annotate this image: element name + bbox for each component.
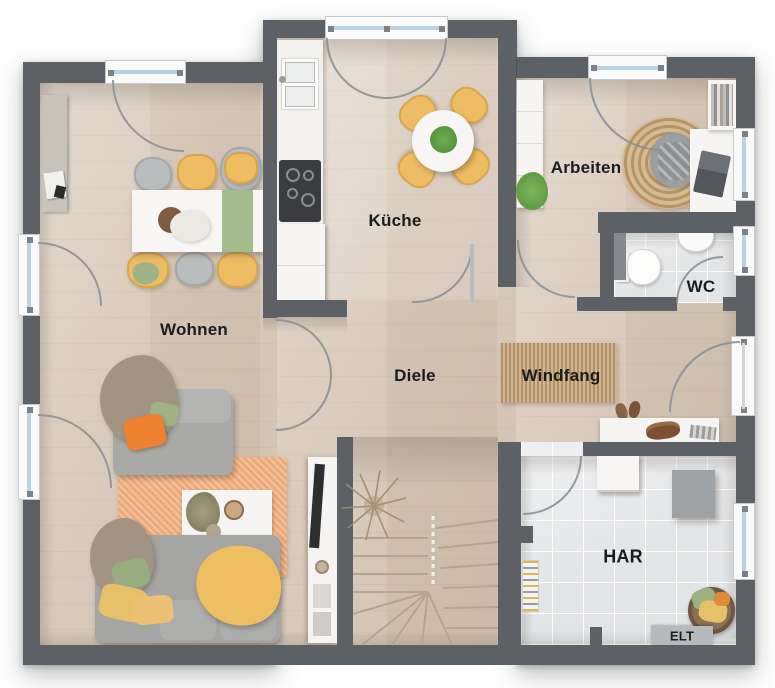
- stair-tread: [442, 586, 498, 588]
- door-arc: [387, 38, 446, 98]
- stair-tread: [440, 564, 498, 568]
- door-arc: [327, 38, 387, 98]
- stair-tread: [444, 607, 498, 608]
- room-label-windfang: Windfang: [522, 366, 601, 386]
- room-label-kueche: Küche: [369, 211, 422, 231]
- door-arc: [38, 415, 111, 488]
- door-arc: [38, 243, 101, 306]
- stair-tread: [438, 542, 498, 548]
- room-label-har: HAR: [603, 547, 643, 568]
- door-arc: [412, 244, 472, 302]
- door-arc: [523, 456, 581, 514]
- dried-plant: [342, 470, 406, 540]
- door-arc: [113, 80, 184, 151]
- door-arc: [590, 78, 662, 150]
- door-arc: [670, 342, 740, 412]
- stair-tread: [353, 592, 428, 614]
- stair-tread: [362, 592, 428, 645]
- room-label-wohnen: Wohnen: [160, 320, 228, 340]
- door-arc: [276, 320, 331, 430]
- overlay-graphics: [0, 0, 775, 688]
- room-label-elt: ELT: [670, 629, 694, 644]
- stair-tread: [436, 520, 498, 528]
- door-arc: [518, 240, 575, 297]
- stair-tread: [428, 592, 452, 645]
- floor-plan: Küche Arbeiten WC Wohnen Diele Windfang …: [0, 0, 775, 688]
- room-label-diele: Diele: [394, 366, 436, 386]
- room-label-arbeiten: Arbeiten: [551, 158, 622, 178]
- room-label-wc: WC: [687, 277, 716, 297]
